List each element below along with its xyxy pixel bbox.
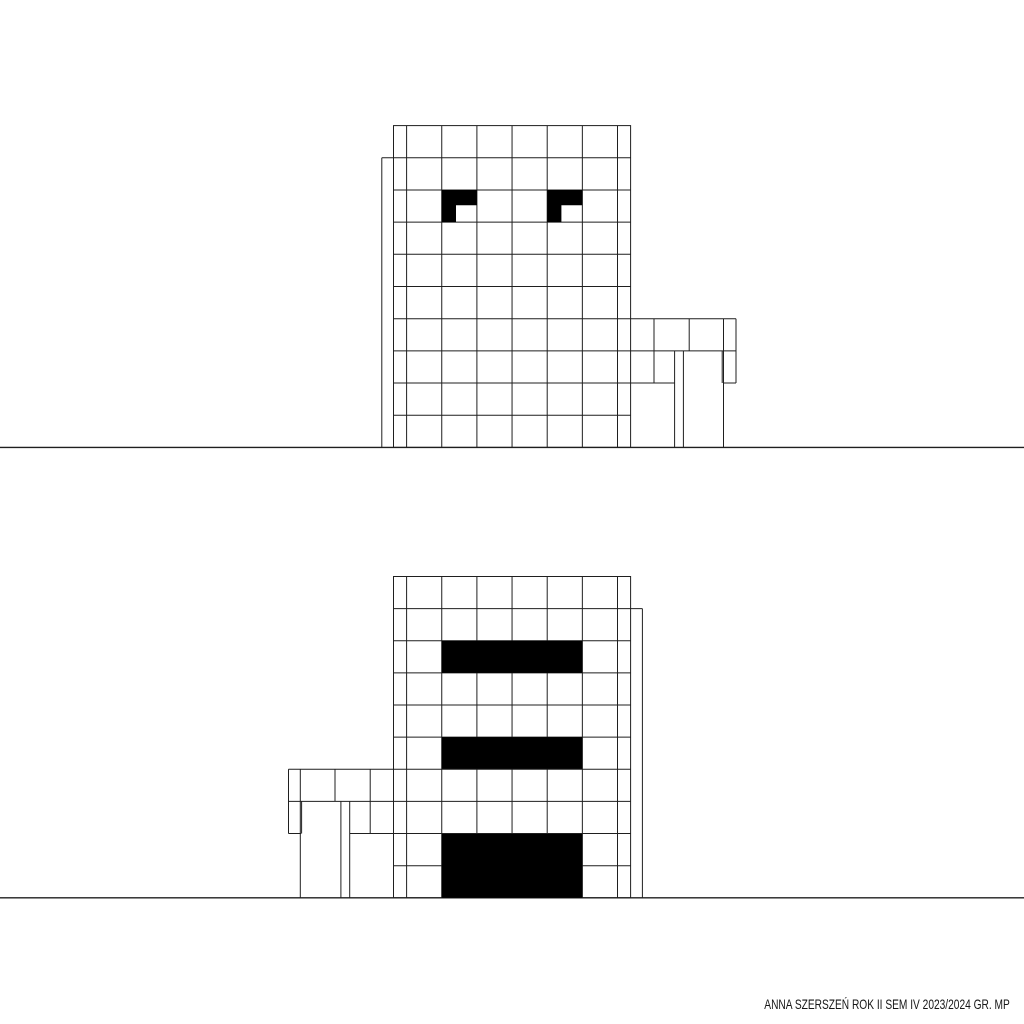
svg-text:ANNA SZERSZEŃ ROK II SEM IV 20: ANNA SZERSZEŃ ROK II SEM IV 2023/2024 GR… (764, 996, 1010, 1012)
